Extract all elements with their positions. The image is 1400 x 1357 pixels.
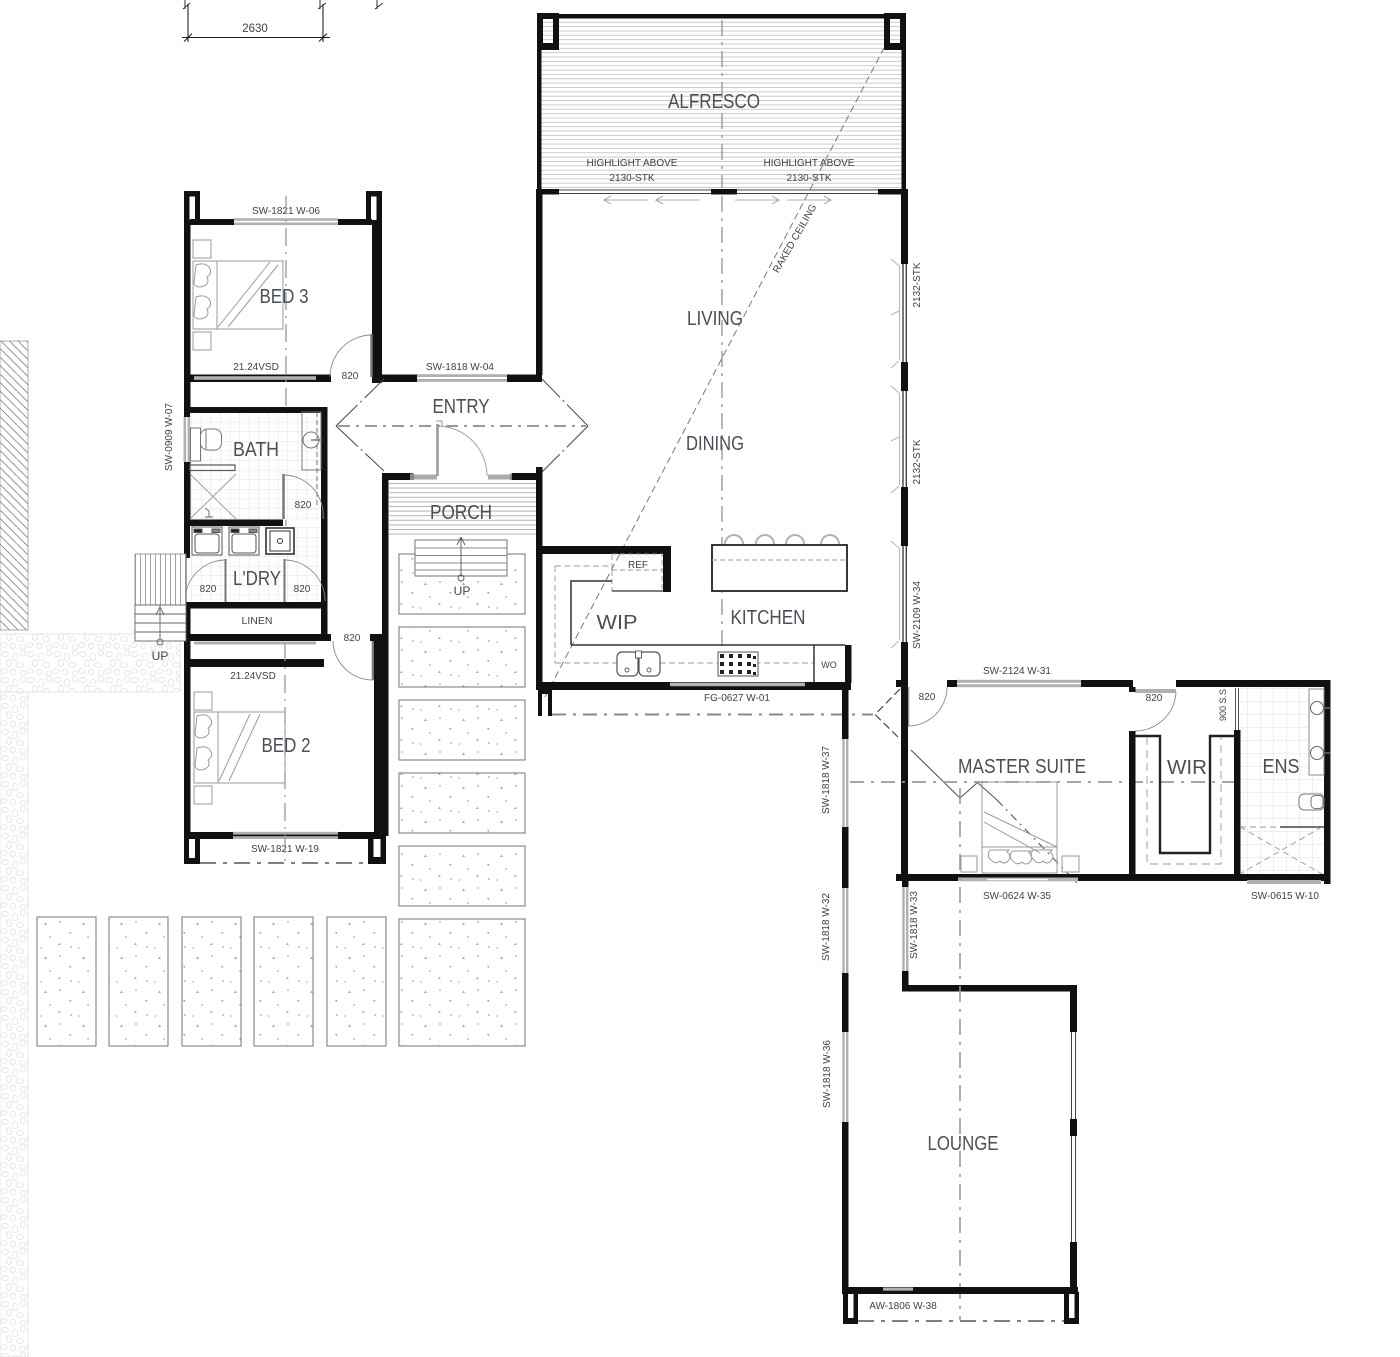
svg-text:820: 820	[295, 500, 312, 511]
svg-text:2130-STK: 2130-STK	[786, 173, 831, 184]
svg-text:LIVING: LIVING	[687, 308, 743, 330]
svg-text:MASTER SUITE: MASTER SUITE	[958, 756, 1086, 778]
svg-text:SW-1818 W-33: SW-1818 W-33	[909, 891, 920, 959]
svg-text:ENS: ENS	[1263, 756, 1300, 778]
svg-text:SW-0624 W-35: SW-0624 W-35	[983, 891, 1051, 902]
svg-text:DINING: DINING	[686, 433, 744, 455]
svg-text:820: 820	[919, 692, 936, 703]
svg-text:2132-STK: 2132-STK	[912, 262, 923, 307]
svg-text:SW-0615 W-10: SW-0615 W-10	[1251, 891, 1319, 902]
svg-text:SW-1818 W-36: SW-1818 W-36	[822, 1040, 833, 1108]
svg-text:PORCH: PORCH	[430, 502, 492, 524]
svg-text:LINEN: LINEN	[242, 615, 273, 627]
svg-text:HIGHLIGHT ABOVE: HIGHLIGHT ABOVE	[587, 158, 678, 169]
svg-text:900 S.S: 900 S.S	[1218, 689, 1228, 721]
svg-text:LOUNGE: LOUNGE	[928, 1133, 999, 1155]
svg-text:BED 2: BED 2	[262, 735, 311, 757]
svg-text:SW-2124 W-31: SW-2124 W-31	[983, 666, 1051, 677]
svg-text:BED 3: BED 3	[260, 286, 309, 308]
svg-text:2630: 2630	[242, 23, 268, 35]
svg-text:820: 820	[200, 584, 217, 595]
svg-text:2132-STK: 2132-STK	[912, 439, 923, 484]
svg-text:ALFRESCO: ALFRESCO	[668, 91, 760, 113]
svg-text:UP: UP	[454, 584, 471, 598]
svg-text:FG-0627 W-01: FG-0627 W-01	[704, 693, 770, 704]
svg-text:BATH: BATH	[233, 439, 279, 461]
svg-text:SW-1818 W-04: SW-1818 W-04	[426, 362, 494, 373]
svg-text:KITCHEN: KITCHEN	[731, 607, 806, 629]
svg-text:HIGHLIGHT ABOVE: HIGHLIGHT ABOVE	[764, 158, 855, 169]
svg-text:2130-STK: 2130-STK	[609, 173, 654, 184]
svg-text:SW-0909 W-07: SW-0909 W-07	[164, 403, 175, 471]
svg-text:WIR: WIR	[1167, 757, 1207, 779]
svg-text:SW-2109 W-34: SW-2109 W-34	[912, 581, 923, 649]
svg-text:WIP: WIP	[597, 612, 638, 634]
svg-text:820: 820	[342, 371, 359, 382]
svg-text:820: 820	[1146, 693, 1163, 704]
svg-text:21.24VSD: 21.24VSD	[230, 671, 276, 682]
svg-text:WO: WO	[821, 660, 837, 670]
svg-text:ENTRY: ENTRY	[433, 396, 490, 418]
svg-text:AW-1806 W-38: AW-1806 W-38	[869, 1301, 937, 1312]
svg-text:SW-1818 W-32: SW-1818 W-32	[821, 893, 832, 961]
svg-text:L'DRY: L'DRY	[233, 568, 281, 590]
svg-text:820: 820	[294, 584, 311, 595]
svg-text:21.24VSD: 21.24VSD	[233, 362, 279, 373]
svg-text:UP: UP	[152, 649, 169, 663]
svg-text:SW-1818 W-37: SW-1818 W-37	[821, 746, 832, 814]
svg-text:REF: REF	[628, 560, 648, 571]
svg-text:820: 820	[344, 633, 361, 644]
